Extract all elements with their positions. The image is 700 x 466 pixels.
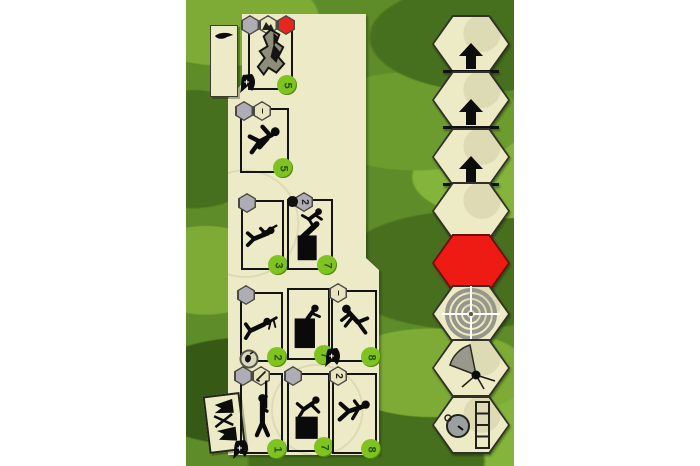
advance-hex-3[interactable]	[432, 128, 510, 186]
advance-hex-1[interactable]	[432, 15, 510, 73]
card-value: 2	[272, 354, 283, 360]
card-value: 7	[322, 262, 333, 268]
red-hex[interactable]	[432, 234, 510, 292]
timer-hex[interactable]	[432, 396, 510, 454]
prone-sniper-card[interactable]: 3	[241, 200, 284, 270]
helmet-plus-icon: +	[324, 347, 342, 368]
game-board: + 5 – 5	[186, 0, 514, 466]
firing-arc-icon	[440, 343, 502, 393]
card-value: 8	[366, 354, 377, 360]
aircraft-silhouette-icon	[214, 30, 234, 42]
svg-text:+: +	[329, 351, 334, 361]
climbing-soldier-card[interactable]: 7	[287, 373, 330, 452]
card-value-badge: 3	[268, 255, 288, 275]
card-value-badge: 5	[277, 75, 297, 95]
card-value: 8	[366, 446, 377, 452]
crawling-soldier-card[interactable]: – 5	[240, 108, 289, 173]
card-value-badge: 7	[317, 255, 337, 275]
card-value-badge: 7	[314, 437, 334, 457]
card-value-badge: 8	[361, 439, 381, 459]
helmet-plus-icon: +	[239, 73, 257, 94]
falling-soldier-card[interactable]: – + 8	[331, 290, 377, 362]
terrain-rocks-card[interactable]: + 5	[248, 22, 293, 90]
grenade-circle-icon	[239, 349, 259, 369]
card-value-badge: 2	[267, 347, 287, 367]
up-arrow-icon	[459, 156, 483, 182]
advance-hex-2[interactable]	[432, 71, 510, 129]
card-value: 1	[272, 446, 283, 452]
card-value: 5	[278, 165, 289, 171]
stopwatch-track-icon	[442, 399, 500, 451]
walking-soldier-card[interactable]: 2 8	[332, 373, 377, 454]
up-arrow-icon	[459, 99, 483, 125]
up-arrow-icon	[459, 43, 483, 69]
crosshair-target-icon	[442, 286, 500, 342]
arc-hex[interactable]	[432, 339, 510, 397]
machine-gunner-card[interactable]: 2	[240, 292, 283, 362]
svg-text:+: +	[237, 443, 242, 453]
card-value-badge: 1	[267, 439, 287, 459]
card-value-badge: 5	[273, 158, 293, 178]
target-hex[interactable]	[432, 285, 510, 343]
card-value: 3	[273, 262, 284, 268]
side-card-top[interactable]	[210, 25, 238, 97]
svg-text:+: +	[244, 77, 249, 87]
card-value-badge: 8	[361, 347, 381, 367]
card-value: 7	[319, 444, 330, 450]
helmet-plus-icon: +	[232, 439, 250, 460]
blank-hex[interactable]	[432, 182, 510, 240]
mortar-card[interactable]: 2 7	[287, 199, 333, 270]
standing-rifleman-card[interactable]: + 1	[240, 373, 283, 454]
card-value: 5	[282, 82, 293, 88]
